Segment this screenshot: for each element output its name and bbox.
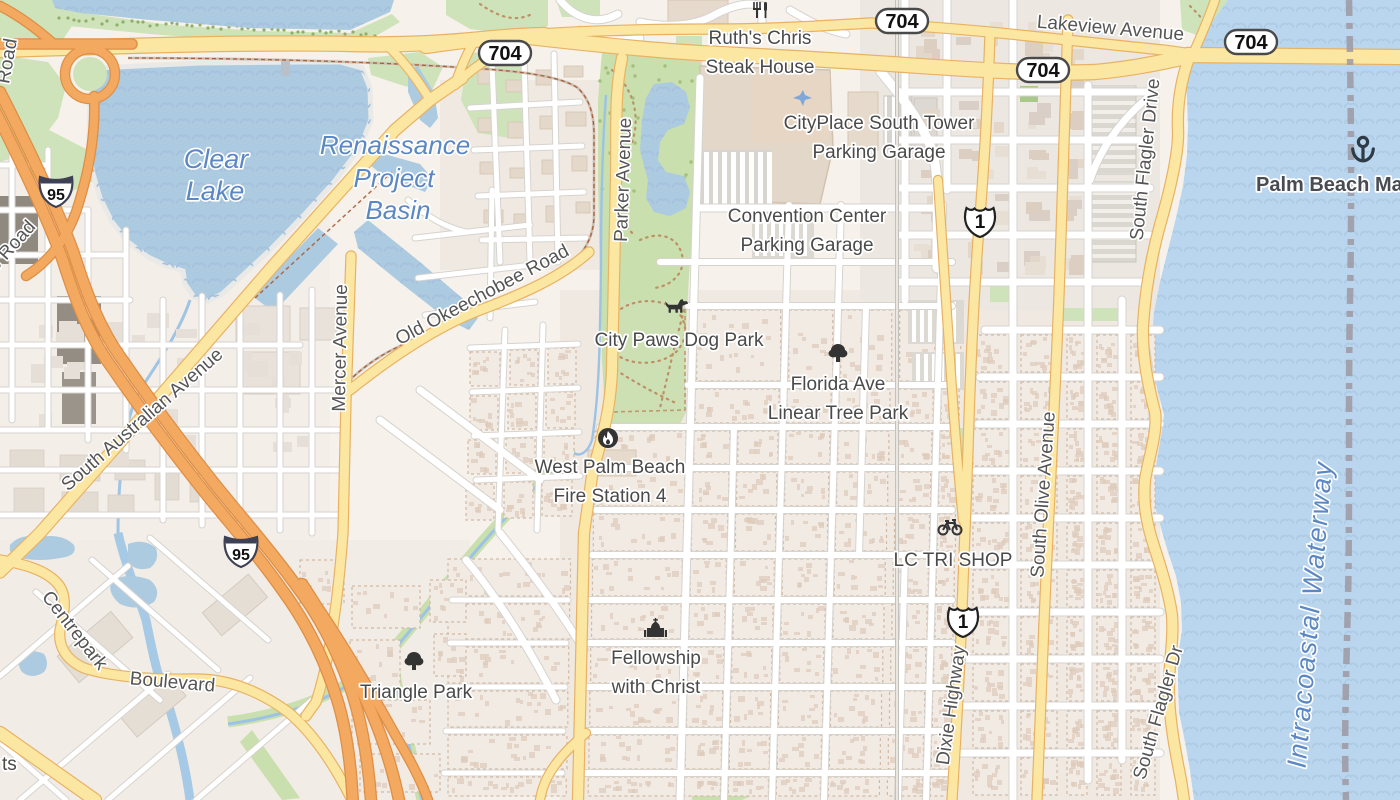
svg-text:704: 704 — [1026, 60, 1060, 82]
svg-text:Parking Garage: Parking Garage — [740, 235, 873, 256]
svg-text:Convention Center: Convention Center — [728, 206, 887, 227]
svg-text:Renaissance: Renaissance — [320, 130, 470, 160]
svg-text:West Palm Beach: West Palm Beach — [535, 457, 686, 478]
svg-text:Linear Tree Park: Linear Tree Park — [768, 403, 909, 424]
svg-text:Ruth's Chris: Ruth's Chris — [709, 28, 812, 49]
svg-text:CityPlace South Tower: CityPlace South Tower — [784, 113, 975, 134]
svg-text:1: 1 — [958, 612, 969, 633]
svg-text:Fellowship: Fellowship — [611, 648, 701, 669]
svg-text:704: 704 — [885, 11, 919, 33]
svg-text:with Christ: with Christ — [611, 677, 701, 698]
svg-text:Project: Project — [354, 163, 437, 193]
svg-text:95: 95 — [47, 187, 65, 204]
svg-text:Triangle Park: Triangle Park — [360, 682, 473, 703]
svg-text:Steak House: Steak House — [706, 57, 815, 78]
svg-text:Clear: Clear — [184, 144, 250, 174]
svg-text:ts: ts — [2, 754, 17, 775]
svg-text:Mercer Avenue: Mercer Avenue — [329, 284, 352, 412]
svg-text:Parking Garage: Parking Garage — [812, 142, 945, 163]
svg-text:Parker Avenue: Parker Avenue — [611, 117, 636, 242]
svg-text:City Paws Dog Park: City Paws Dog Park — [595, 330, 764, 351]
svg-text:Lake: Lake — [186, 176, 245, 206]
svg-text:Basin: Basin — [365, 195, 430, 225]
svg-text:704: 704 — [488, 43, 522, 65]
svg-text:95: 95 — [232, 547, 250, 564]
svg-text:LC TRI SHOP: LC TRI SHOP — [894, 550, 1013, 571]
svg-text:Palm Beach Marina: Palm Beach Marina — [1256, 174, 1400, 196]
svg-text:704: 704 — [1234, 32, 1268, 54]
svg-text:Florida Ave: Florida Ave — [791, 374, 886, 395]
svg-text:1: 1 — [975, 212, 986, 233]
svg-text:Fire Station 4: Fire Station 4 — [554, 486, 667, 507]
